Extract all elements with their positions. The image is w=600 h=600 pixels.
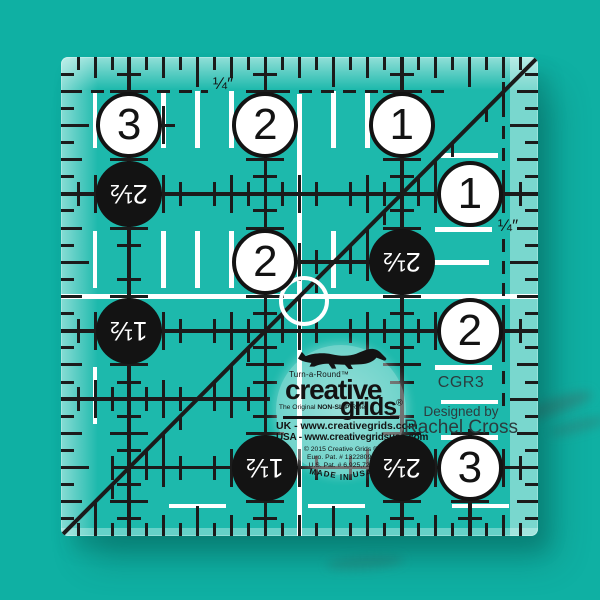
edge-tick-bottom [315, 523, 318, 536]
edge-tick-right [525, 278, 538, 281]
grid-cross-tick [117, 517, 141, 520]
edge-tick-bottom [298, 515, 301, 536]
grid-cross-tick [111, 456, 114, 480]
grid-cross-tick [117, 244, 141, 247]
edge-tick-bottom [349, 523, 352, 536]
grid-cross-tick [213, 319, 216, 343]
grid-cross-tick [230, 175, 233, 213]
edge-tick-top [298, 57, 301, 78]
white-dash-mark [195, 91, 200, 148]
edge-tick-left [61, 363, 82, 366]
measurement-value: 2 [253, 103, 277, 147]
edge-tick-left [61, 107, 74, 110]
edge-tick-right [525, 346, 538, 349]
measurement-value: 2½ [383, 249, 421, 276]
grid-cross-tick [253, 175, 277, 178]
measurement-value: 1½ [110, 317, 148, 344]
edge-tick-bottom [332, 506, 335, 536]
edge-tick-left [61, 415, 74, 418]
measurement-circle-white: 1 [437, 161, 503, 227]
grid-cross-tick [253, 517, 277, 520]
quilting-ruler: 3212½122½1½21½2½3 ¼″ ¼″ Turn-a-Round™ cr… [61, 57, 538, 536]
white-dash-mark [93, 231, 98, 288]
fox-logo-icon [290, 348, 394, 370]
grid-cross-tick [383, 182, 386, 206]
designer-name: Rachel Cross [397, 417, 525, 439]
grid-cross-tick [519, 182, 522, 206]
edge-tick-right [510, 398, 538, 401]
edge-tick-bottom [502, 515, 505, 536]
white-dash-mark [195, 231, 200, 288]
reflection-smudge [547, 413, 600, 439]
edge-tick-right [510, 124, 538, 127]
edge-tick-top [485, 57, 488, 70]
made-word: IN [340, 473, 350, 482]
edge-tick-right [525, 244, 538, 247]
logo-original-suffix: Ruler [349, 404, 367, 411]
edge-tick-top [77, 57, 80, 70]
grid-cross-tick [77, 319, 80, 343]
measurement-circle-black: 2½ [369, 229, 435, 295]
grid-cross-tick [179, 182, 182, 206]
measurement-value: 2 [253, 240, 277, 284]
edge-tick-bottom [77, 523, 80, 536]
diagonal-tick [179, 417, 182, 430]
grid-cross-tick [117, 415, 141, 418]
grid-cross-tick [179, 319, 182, 343]
grid-cross-tick [179, 456, 182, 480]
measurement-value: 2½ [383, 454, 421, 481]
diagonal-tick [485, 109, 488, 122]
grid-cross-tick [281, 182, 284, 206]
diagonal-tick [502, 92, 505, 112]
edge-tick-top [332, 57, 335, 87]
edge-tick-right [517, 363, 538, 366]
edge-tick-right [525, 209, 538, 212]
grid-cross-tick [349, 319, 352, 343]
white-dash-mark [435, 365, 492, 370]
edge-tick-top [383, 57, 386, 70]
diagonal-tick [417, 178, 420, 191]
edge-tick-bottom [281, 523, 284, 536]
white-dash-mark [441, 153, 498, 158]
edge-tick-right [525, 483, 538, 486]
grid-cross-tick [383, 158, 421, 161]
grid-cross-tick [366, 312, 369, 350]
edge-tick-left [61, 432, 82, 435]
grid-cross-tick [162, 175, 165, 213]
edge-tick-top [502, 57, 505, 78]
edge-tick-bottom [519, 523, 522, 536]
logo-original-bold: NON-SLIP [317, 404, 349, 411]
measurement-circle-black: 2½ [369, 435, 435, 501]
diagonal-tick [451, 144, 454, 157]
edge-tick-top [519, 57, 522, 70]
edge-tick-bottom [247, 523, 250, 536]
edge-tick-right [517, 158, 538, 161]
grid-cross-tick [94, 380, 97, 418]
product-photo: 3212½122½1½21½2½3 ¼″ ¼″ Turn-a-Round™ cr… [0, 0, 600, 600]
grid-cross-tick [77, 182, 80, 206]
measurement-value: 2 [458, 309, 482, 353]
edge-tick-bottom [485, 523, 488, 536]
edge-tick-top [315, 57, 318, 70]
edge-tick-right [510, 261, 538, 264]
edge-tick-top [179, 57, 182, 70]
grid-cross-tick [117, 381, 141, 384]
edge-tick-bottom [434, 515, 437, 536]
grid-cross-tick [253, 381, 277, 384]
edge-tick-top [417, 57, 420, 70]
edge-tick-left [61, 124, 89, 127]
edge-tick-left [61, 346, 74, 349]
edge-tick-top [94, 57, 97, 78]
measurement-value: 3 [117, 103, 141, 147]
edge-tick-right [517, 90, 538, 93]
edge-tick-bottom [383, 523, 386, 536]
grid-cross-tick [458, 517, 482, 520]
edge-tick-bottom [145, 523, 148, 536]
edge-tick-bottom [417, 523, 420, 536]
measurement-circle-white: 1 [369, 92, 435, 158]
edge-tick-left [61, 312, 74, 315]
grid-cross-tick [246, 158, 284, 161]
edge-tick-top [366, 57, 369, 78]
diagonal-tick [383, 212, 386, 225]
grid-cross-tick [451, 500, 489, 503]
edge-tick-top [247, 57, 250, 70]
grid-cross-tick [247, 319, 250, 343]
diagonal-tick [213, 383, 216, 396]
logo-original-prefix: The Original [279, 404, 317, 411]
measurement-circle-black: 2½ [96, 161, 162, 227]
grid-cross-tick [390, 209, 414, 212]
grid-cross-tick [213, 456, 216, 480]
diagonal-tick [349, 246, 352, 259]
edge-tick-top [468, 57, 471, 87]
white-dash-mark [452, 504, 509, 509]
grid-cross-tick [247, 387, 250, 411]
edge-tick-right [525, 381, 538, 384]
grid-cross-tick [117, 449, 141, 452]
diagonal-tick [434, 161, 437, 181]
edge-tick-left [61, 483, 74, 486]
edge-tick-left [61, 261, 89, 264]
measurement-circle-white: 2 [232, 229, 298, 295]
grid-cross-tick [117, 73, 141, 76]
grid-cross-tick [519, 456, 522, 480]
grid-cross-tick [315, 182, 318, 206]
logo-divider-line [283, 416, 399, 419]
grid-cross-tick [110, 500, 148, 503]
grid-cross-tick [383, 319, 386, 343]
diagonal-tick [145, 451, 148, 464]
grid-cross-tick [117, 483, 141, 486]
grid-cross-tick [390, 73, 414, 76]
grid-cross-tick [117, 278, 141, 281]
edge-tick-bottom [162, 515, 165, 536]
registered-mark: ® [396, 398, 402, 408]
grid-cross-tick [349, 182, 352, 206]
measurement-circle-white: 3 [437, 435, 503, 501]
edge-tick-left [61, 466, 89, 469]
edge-tick-bottom [196, 506, 199, 536]
grid-cross-tick [179, 387, 182, 411]
measurement-circle-white: 3 [96, 92, 162, 158]
measurement-value: 3 [458, 446, 482, 490]
grid-cross-tick [246, 363, 284, 366]
edge-tick-right [525, 107, 538, 110]
edge-tick-bottom [230, 515, 233, 536]
edge-tick-bottom [451, 523, 454, 536]
measurement-value: 1½ [247, 454, 285, 481]
grid-cross-tick [213, 182, 216, 206]
edge-tick-right [517, 500, 538, 503]
diagonal-tick [94, 503, 97, 523]
reflection-smudge [326, 553, 405, 571]
measurement-circle-black: 1½ [232, 435, 298, 501]
measurement-circle-white: 2 [232, 92, 298, 158]
grid-cross-tick [502, 449, 505, 487]
edge-tick-top [213, 57, 216, 70]
edge-tick-left [61, 500, 82, 503]
grid-cross-tick [366, 175, 369, 213]
edge-tick-right [517, 295, 538, 298]
grid-cross-tick [162, 380, 165, 418]
edge-tick-top [162, 57, 165, 78]
grid-cross-tick [390, 312, 414, 315]
edge-tick-right [525, 141, 538, 144]
logo-original-line: The Original NON-SLIP Ruler [279, 404, 368, 411]
white-dash-mark [331, 91, 336, 148]
edge-tick-top [281, 57, 284, 70]
quarter-seam-dashed-line [91, 90, 208, 93]
grid-cross-tick [417, 319, 420, 343]
measurement-value: 2½ [110, 180, 148, 207]
edge-tick-top [434, 57, 437, 78]
edge-tick-bottom [179, 523, 182, 536]
grid-cross-tick [502, 175, 505, 213]
edge-tick-left [61, 73, 74, 76]
edge-tick-left [61, 141, 74, 144]
diagonal-tick [366, 229, 369, 249]
edge-tick-left [61, 381, 74, 384]
edge-tick-right [525, 312, 538, 315]
grid-cross-tick [145, 387, 148, 411]
measurement-value: 1 [389, 103, 413, 147]
diagonal-tick [230, 366, 233, 386]
logo-url-uk: UK - www.creativegrids.com [276, 420, 406, 432]
edge-tick-bottom [366, 515, 369, 536]
grid-cross-tick [253, 73, 277, 76]
grid-cross-tick [253, 209, 277, 212]
grid-cross-tick [390, 517, 414, 520]
edge-tick-bottom [213, 523, 216, 536]
grid-cross-tick [110, 432, 148, 435]
grid-cross-tick [519, 319, 522, 343]
grid-cross-tick [383, 295, 421, 298]
edge-tick-bottom [111, 523, 114, 536]
grid-cross-tick [162, 106, 165, 144]
edge-tick-left [61, 295, 82, 298]
grid-line-horizontal [61, 397, 270, 401]
grid-cross-tick [111, 387, 114, 411]
grid-cross-tick [253, 415, 277, 418]
edge-tick-right [525, 517, 538, 520]
edge-tick-left [61, 244, 74, 247]
grid-cross-tick [253, 346, 277, 349]
edge-tick-top [111, 57, 114, 70]
edge-tick-left [61, 175, 74, 178]
grid-cross-tick [315, 250, 318, 274]
edge-tick-left [61, 278, 74, 281]
model-number: CGR3 [409, 374, 513, 392]
edge-tick-top [451, 57, 454, 70]
grid-cross-tick [298, 175, 301, 213]
edge-tick-left [61, 449, 74, 452]
edge-tick-left [61, 209, 74, 212]
measurement-circle-black: 1½ [96, 298, 162, 364]
grid-cross-tick [162, 312, 165, 350]
grid-cross-tick [230, 312, 233, 350]
diagonal-tick [162, 434, 165, 454]
edge-tick-top [145, 57, 148, 70]
quarter-inch-label-top: ¼″ [197, 74, 249, 94]
grid-cross-tick [390, 175, 414, 178]
edge-tick-top [349, 57, 352, 70]
grid-cross-tick [502, 312, 505, 350]
edge-tick-right [525, 415, 538, 418]
edge-tick-left [61, 90, 82, 93]
edge-tick-left [61, 227, 82, 230]
grid-cross-tick [110, 227, 148, 230]
edge-tick-left [61, 158, 82, 161]
diagonal-tick [111, 486, 114, 499]
white-dash-mark [308, 504, 365, 509]
edge-tick-right [525, 73, 538, 76]
grid-cross-tick [253, 312, 277, 315]
measurement-value: 1 [458, 172, 482, 216]
grid-cross-tick [247, 182, 250, 206]
edge-tick-right [525, 449, 538, 452]
white-dash-mark [161, 231, 166, 288]
measurement-circle-white: 2 [437, 298, 503, 364]
edge-tick-left [61, 398, 89, 401]
edge-tick-left [61, 517, 74, 520]
white-dash-mark [432, 260, 489, 265]
diagonal-tick [247, 349, 250, 362]
edge-tick-right [525, 175, 538, 178]
